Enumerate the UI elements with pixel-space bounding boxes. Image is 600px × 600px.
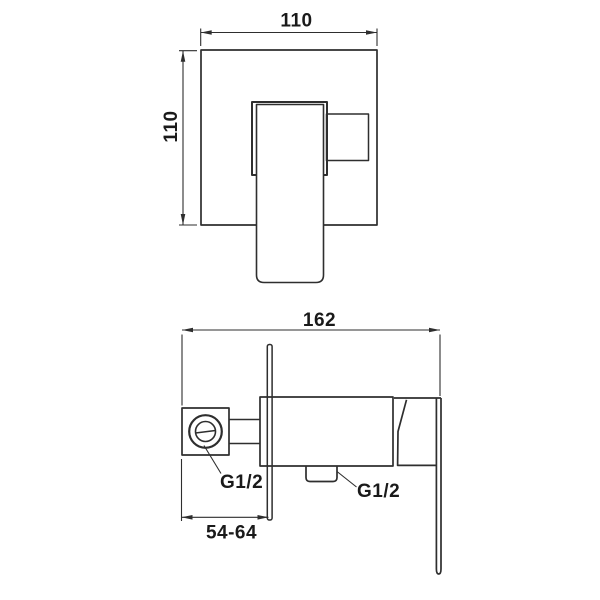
width-arrow-right [366,30,377,35]
inlet-thread-leader [204,446,221,474]
width-arrow-left [201,30,212,35]
shower-mixer-drawing: 110 110 162 54-64 G1/2 G1/2 [0,0,600,600]
depth-arrow-left [182,328,193,333]
height-arrow-top [181,51,186,62]
technical-drawing-canvas: 110 110 162 54-64 G1/2 G1/2 [0,0,600,600]
lever-handle-front [257,105,324,283]
outlet-stub [306,467,337,482]
outlet-thread-leader [337,472,357,488]
outlet-thread-label: G1/2 [357,481,400,502]
depth-range-arrow-left [182,515,193,520]
front-height-label: 110 [161,110,182,142]
wall-plate-side [267,345,272,521]
side-depth-range-label: 54-64 [206,523,257,544]
side-knob-front [327,114,369,161]
depth-arrow-right [429,328,440,333]
side-depth-label: 162 [303,310,336,331]
height-arrow-bottom [181,214,186,225]
front-width-label: 110 [280,11,312,32]
inlet-screw-slot [196,431,216,434]
inlet-thread-label: G1/2 [220,472,263,493]
front-view [201,50,377,283]
valve-body [260,397,393,466]
depth-dimension-lines [182,330,440,406]
handle-grip-side [436,398,441,574]
inlet-pipe [229,420,260,444]
handle-inner-profile-side [398,400,437,466]
